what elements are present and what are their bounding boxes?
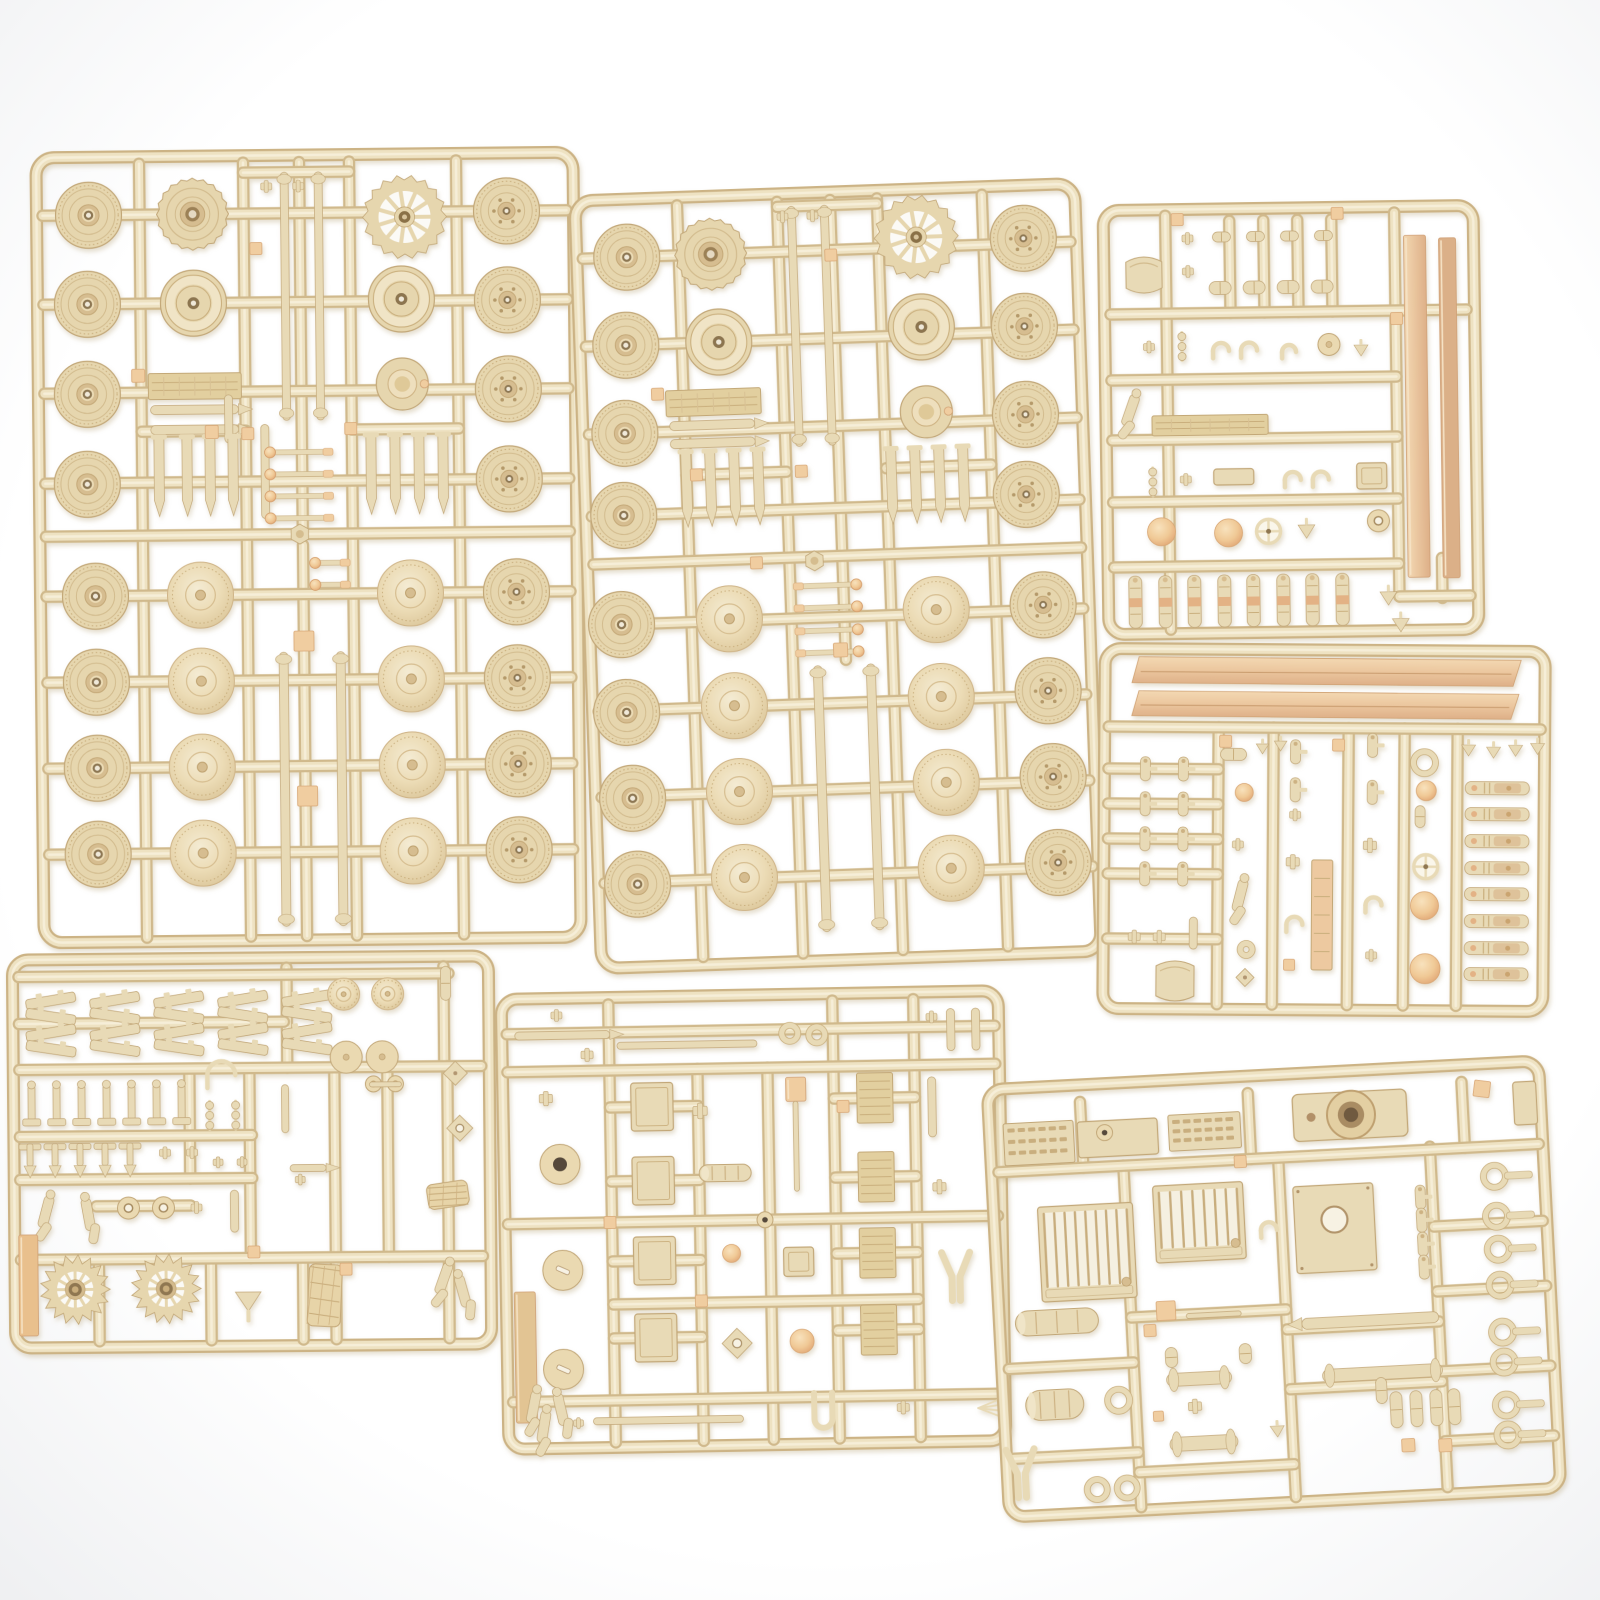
photo-model-kit-sprues <box>0 0 1600 1600</box>
sprue-photo-canvas <box>0 0 1600 1600</box>
